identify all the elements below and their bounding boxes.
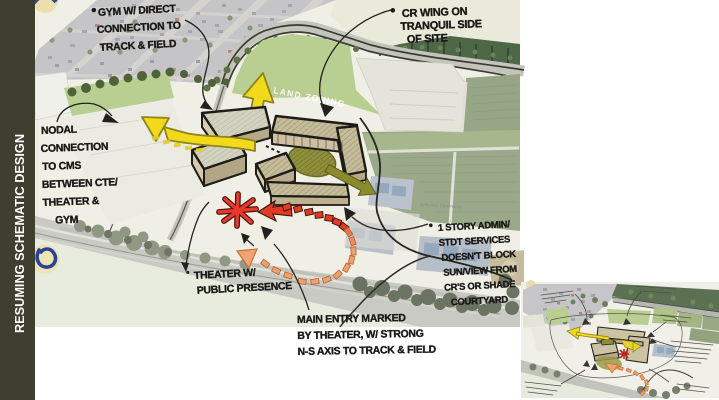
svg-text:GYM: GYM xyxy=(55,214,79,227)
svg-text:MAIN ENTRY MARKED: MAIN ENTRY MARKED xyxy=(297,312,407,326)
svg-text:CR WING ON: CR WING ON xyxy=(402,6,468,20)
svg-text:BY THEATER, W/ STRONG: BY THEATER, W/ STRONG xyxy=(297,328,424,342)
svg-text:CONNECTION: CONNECTION xyxy=(40,141,108,155)
svg-text:TO CMS: TO CMS xyxy=(42,160,82,173)
svg-text:NODAL: NODAL xyxy=(41,124,78,137)
svg-text:RESUMING SCHEMATIC DESIGN: RESUMING SCHEMATIC DESIGN xyxy=(12,134,27,333)
svg-text:OF SITE: OF SITE xyxy=(407,32,448,45)
svg-text:THEATER &: THEATER & xyxy=(42,195,100,209)
svg-text:N-S AXIS TO TRACK & FIELD: N-S AXIS TO TRACK & FIELD xyxy=(297,344,436,358)
